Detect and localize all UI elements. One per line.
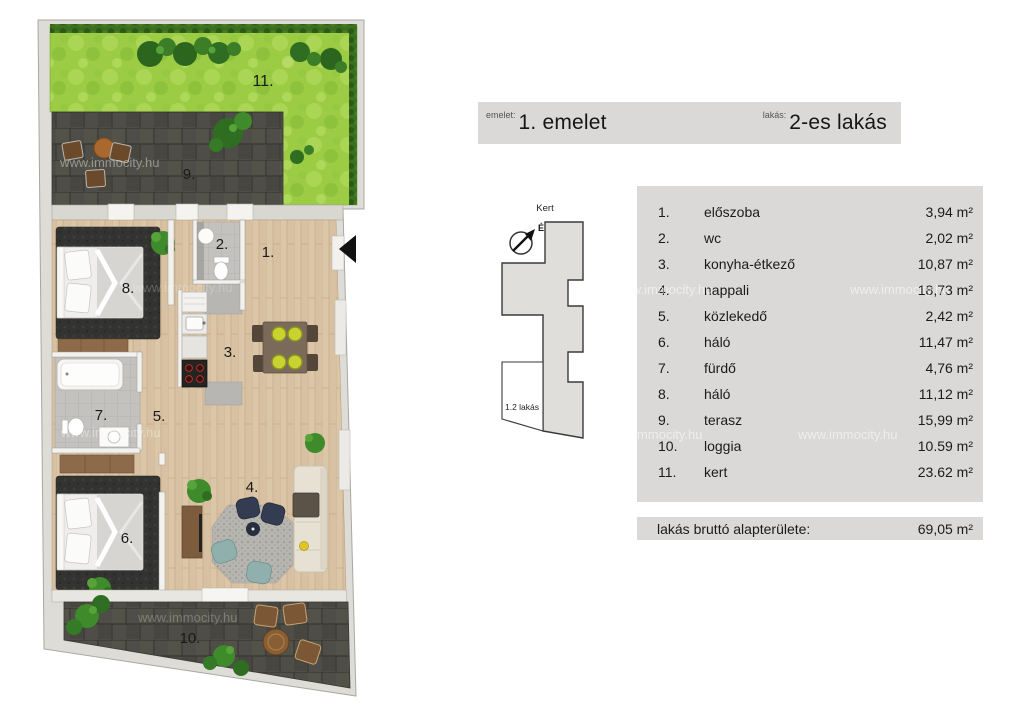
label-room-3: 3. (224, 344, 237, 361)
table-row: 11.kert23.62 m² (637, 459, 983, 485)
keyplan-garden-label: Kert (536, 203, 554, 214)
room-number: 4. (637, 282, 704, 298)
table-row: 4.nappali18,73 m² (637, 277, 983, 303)
room-name: loggia (704, 438, 918, 454)
room-area: 10,87 m² (918, 256, 983, 272)
room-number: 11. (637, 464, 704, 480)
coffee-table (293, 493, 319, 517)
room-number: 10. (637, 438, 704, 454)
room-name: közlekedő (704, 308, 926, 324)
label-room-4: 4. (246, 479, 259, 496)
room-name: háló (704, 334, 919, 350)
label-room-9: 9. (183, 166, 196, 183)
room-name: konyha-étkező (704, 256, 918, 272)
room-number: 5. (637, 308, 704, 324)
label-room-5: 5. (153, 408, 166, 425)
room-area: 18,73 m² (918, 282, 983, 298)
table-row: 1.előszoba3,94 m² (637, 199, 983, 225)
table-row: 5.közlekedő2,42 m² (637, 303, 983, 329)
table-row: 2.wc2,02 m² (637, 225, 983, 251)
label-room-6: 6. (121, 530, 134, 547)
svg-text:www.immocity.hu: www.immocity.hu (132, 280, 232, 295)
stove (182, 360, 207, 387)
room-area: 15,99 m² (918, 412, 983, 428)
table-row: 9.terasz15,99 m² (637, 407, 983, 433)
room-name: terasz (704, 412, 918, 428)
room-area: 4,76 m² (926, 360, 983, 376)
room-number: 2. (637, 230, 704, 246)
room-name: kert (704, 464, 918, 480)
keyplan: Kert 1.2 lakás É (502, 203, 583, 438)
room-name: nappali (704, 282, 918, 298)
floor-field-value: 1. emelet (519, 111, 607, 135)
floor-field: emelet: 1. emelet (486, 111, 607, 135)
room-area: 23.62 m² (918, 464, 983, 480)
gross-area-summary: lakás bruttó alapterülete: 69,05 m² (637, 517, 983, 540)
room-area: 11,12 m² (919, 386, 983, 402)
svg-text:www.immocity.hu: www.immocity.hu (59, 155, 159, 170)
plant-living-right (305, 433, 325, 453)
table-row: 6.háló11,47 m² (637, 329, 983, 355)
room-6-bedroom (56, 455, 160, 599)
room-area: 11,47 m² (919, 334, 983, 350)
room-name: wc (704, 230, 926, 246)
label-room-7: 7. (95, 407, 108, 424)
table-row: 3.konyha-étkező10,87 m² (637, 251, 983, 277)
unit-field-label: lakás: (763, 110, 787, 120)
room-name: háló (704, 386, 919, 402)
kitchen-counter-bottom (205, 382, 242, 405)
label-room-10: 10. (180, 630, 201, 647)
header-bar: emelet: 1. emelet lakás: 2-es lakás (478, 102, 901, 144)
label-room-2: 2. (216, 236, 229, 253)
room-name: előszoba (704, 204, 926, 220)
label-room-11: 11. (252, 73, 273, 90)
bathtub (57, 359, 123, 390)
wc-sink (198, 228, 214, 244)
wc-toilet (214, 257, 229, 280)
keyplan-unit-outline (502, 362, 543, 431)
room-number: 3. (637, 256, 704, 272)
room-area-table: 1.előszoba3,94 m² 2.wc2,02 m² 3.konyha-é… (637, 186, 983, 502)
table-row: 8.háló11,12 m² (637, 381, 983, 407)
room-number: 1. (637, 204, 704, 220)
room-area: 10.59 m² (918, 438, 983, 454)
label-room-1: 1. (262, 244, 275, 261)
room-number: 7. (637, 360, 704, 376)
sofa (294, 466, 327, 572)
svg-text:www.immocity.hu: www.immocity.hu (60, 425, 160, 440)
floorplan-page: 1. 2. 3. 4. 5. 6. 7. 8. 9. 10. 11. www.i… (0, 0, 1024, 726)
room-number: 9. (637, 412, 704, 428)
unit-field-value: 2-es lakás (789, 111, 887, 135)
svg-text:www.immocity.hu: www.immocity.hu (137, 610, 237, 625)
keyplan-unit-label: 1.2 lakás (505, 402, 539, 412)
room-number: 6. (637, 334, 704, 350)
kitchen-sink (182, 314, 207, 334)
north-compass-icon (510, 229, 535, 254)
wardrobe-6 (60, 455, 134, 473)
table-row: 10.loggia10.59 m² (637, 433, 983, 459)
keyplan-north-label: É (538, 223, 544, 233)
room-number: 8. (637, 386, 704, 402)
yellow-cushion (300, 542, 309, 551)
room-area: 2,42 m² (926, 308, 983, 324)
floor-field-label: emelet: (486, 110, 516, 120)
summary-label: lakás bruttó alapterülete: (637, 521, 918, 537)
summary-value: 69,05 m² (918, 521, 983, 537)
unit-field: lakás: 2-es lakás (763, 111, 901, 135)
tv-cabinet (182, 506, 202, 558)
table-row: 7.fürdő4,76 m² (637, 355, 983, 381)
fridge (182, 292, 207, 312)
loggia-door-threshold (202, 588, 248, 602)
room-name: fürdő (704, 360, 926, 376)
room-area: 2,02 m² (926, 230, 983, 246)
room-area: 3,94 m² (926, 204, 983, 220)
